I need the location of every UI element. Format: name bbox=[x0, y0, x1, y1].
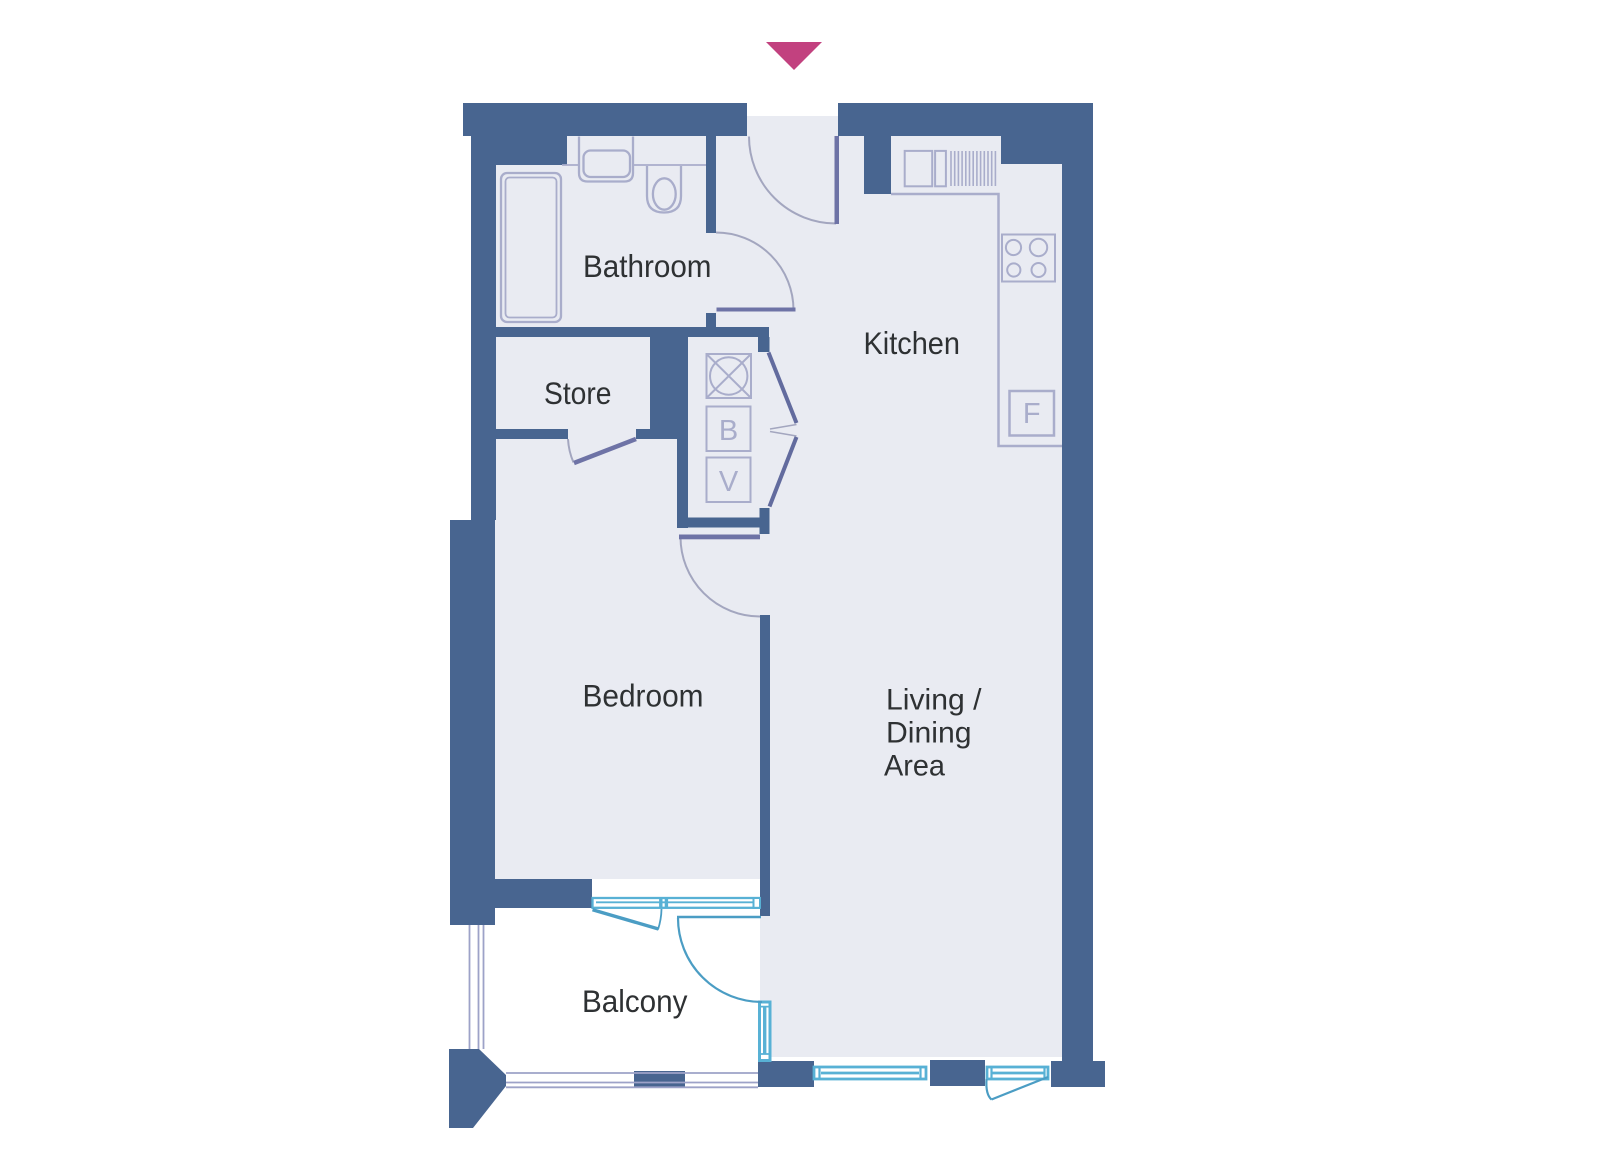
svg-text:Store: Store bbox=[544, 375, 612, 411]
svg-text:Kitchen: Kitchen bbox=[864, 325, 961, 361]
svg-text:Living /: Living / bbox=[886, 684, 982, 717]
svg-text:Area: Area bbox=[884, 750, 946, 783]
svg-text:Bedroom: Bedroom bbox=[583, 678, 704, 714]
svg-text:Dining: Dining bbox=[886, 717, 972, 750]
svg-text:B: B bbox=[719, 415, 738, 447]
svg-text:Bathroom: Bathroom bbox=[583, 248, 712, 284]
svg-text:F: F bbox=[1023, 398, 1041, 430]
svg-text:Balcony: Balcony bbox=[582, 983, 688, 1019]
svg-text:V: V bbox=[719, 466, 739, 498]
